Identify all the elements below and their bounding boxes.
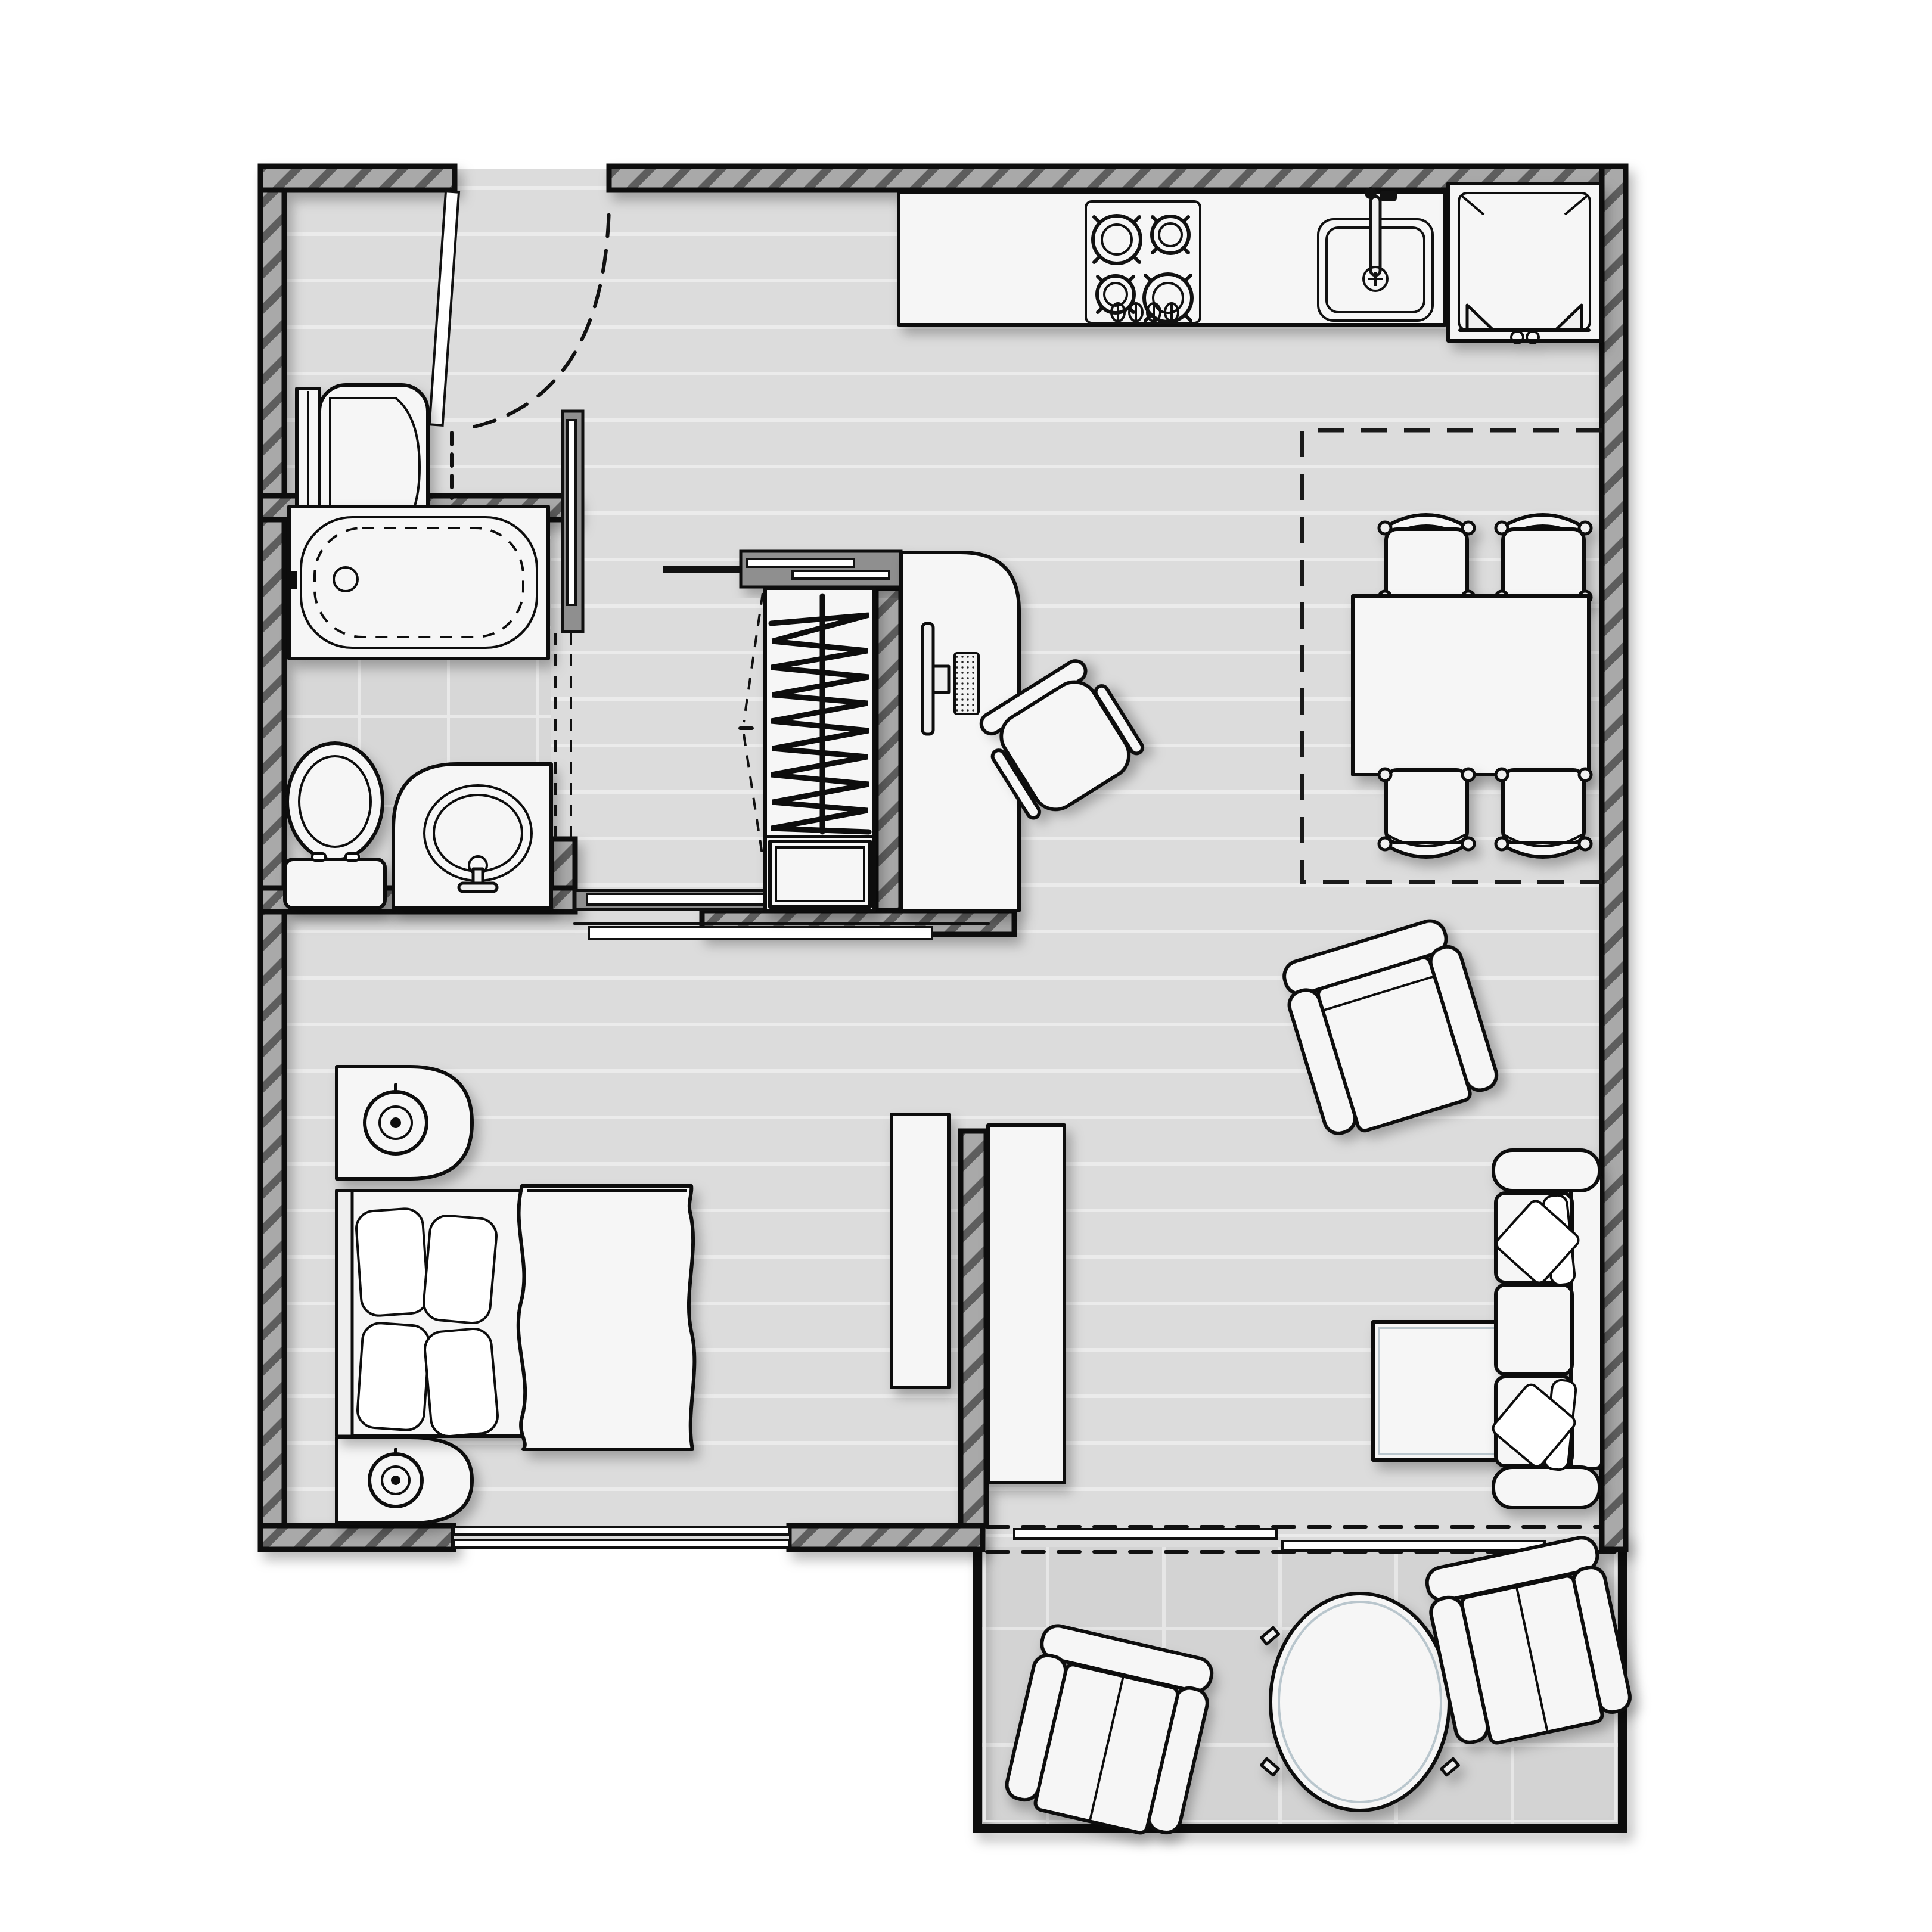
- nightstand-bottom: [337, 1437, 472, 1523]
- dining-chair-top-left: [1379, 515, 1474, 603]
- kitchen: [899, 184, 1601, 343]
- pillow-3: [356, 1322, 430, 1431]
- sink-faucet-handle: [459, 883, 497, 892]
- toilet: [285, 743, 385, 908]
- window-glass-inner: [454, 1540, 789, 1548]
- pocket-door-bottom-leaf: [587, 894, 766, 905]
- dining-chair-bottom-left: [1379, 769, 1474, 857]
- bathtub-apron: [289, 507, 548, 659]
- sofa-armrest-top: [1493, 1150, 1599, 1191]
- bed-headboard: [337, 1191, 352, 1436]
- toilet-bowl: [287, 743, 383, 860]
- double-bed: [337, 1186, 694, 1449]
- hob-burner-bottom-right: [1144, 274, 1192, 322]
- hob-burner-top-left: [1093, 216, 1141, 263]
- closet-sliding-leaf-2: [793, 571, 889, 579]
- lamp-bottom-bulb: [391, 1476, 400, 1485]
- wall-exterior-bottom-left: [260, 1526, 454, 1549]
- dining-chair-bottom-right: [1496, 769, 1591, 857]
- bathtub-faucet: [290, 571, 297, 589]
- sofa: [1490, 1150, 1602, 1508]
- bedroom-window: [454, 1526, 789, 1549]
- wall-exterior-bottom-mid: [789, 1526, 983, 1549]
- floor-entry-threshold: [455, 169, 609, 192]
- bathtub: [289, 507, 548, 659]
- pocket-door-leaf: [567, 420, 576, 605]
- dining-chair-top-right: [1496, 515, 1591, 603]
- window-glass-outer: [454, 1527, 789, 1535]
- sofa-armrest-bottom: [1493, 1467, 1599, 1508]
- floor-plan-page: [0, 0, 1932, 1932]
- monitor: [922, 623, 933, 734]
- balcony-sliding-panel-right: [1282, 1541, 1545, 1551]
- toilet-hinge-left: [312, 853, 325, 861]
- toilet-hinge-right: [346, 853, 359, 861]
- kitchen-faucet-handle: [1380, 191, 1397, 201]
- hob-burner-bottom-left: [1097, 276, 1134, 313]
- keyboard: [955, 653, 979, 714]
- wall-exterior-right: [1602, 166, 1626, 1549]
- pillow-4: [424, 1327, 499, 1437]
- lamp-top-bulb: [390, 1117, 401, 1128]
- pillow-1: [355, 1207, 429, 1316]
- refrigerator: [1448, 184, 1601, 343]
- duvet: [518, 1186, 695, 1449]
- pillow-2: [423, 1214, 498, 1324]
- toilet-cistern: [285, 859, 385, 908]
- balcony-sliding-panel-left: [1014, 1529, 1276, 1539]
- wall-tv-partition: [961, 1131, 986, 1526]
- wardrobe-shelf-box: [770, 841, 870, 907]
- kitchen-faucet-base: [1365, 187, 1377, 199]
- media-console-living-side: [988, 1125, 1064, 1483]
- wardrobe: [765, 588, 874, 911]
- dining-table: [1353, 596, 1589, 775]
- monitor-stand: [933, 666, 949, 692]
- kitchen-faucet-stem: [1371, 197, 1380, 275]
- wall-exterior-left: [260, 166, 284, 1549]
- bedroom-door-leaf: [589, 927, 932, 939]
- nightstand-top: [337, 1067, 472, 1179]
- closet-sliding-track: [741, 551, 901, 587]
- balcony-table-top: [1271, 1594, 1449, 1810]
- wall-closet-right: [876, 588, 901, 934]
- wall-exterior-top-left: [260, 166, 455, 190]
- hob-burner-top-right: [1152, 216, 1189, 253]
- media-console-bedroom-side: [892, 1114, 949, 1387]
- closet-sliding-leaf-1: [747, 559, 854, 567]
- floor-plan-drawing: [0, 0, 1932, 1932]
- vanity-sink: [393, 764, 551, 908]
- sofa-seat-2: [1496, 1285, 1572, 1374]
